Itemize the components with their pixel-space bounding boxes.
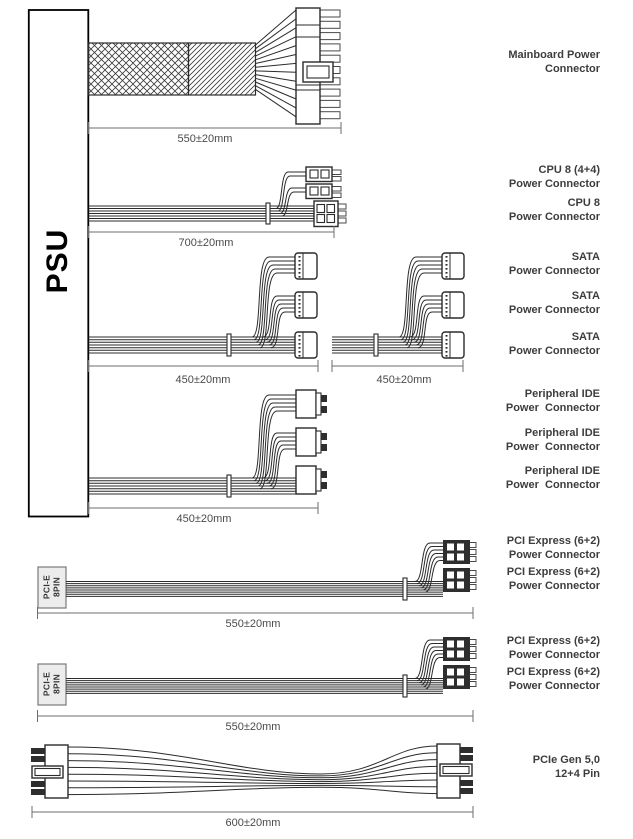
label-line: SATA [509,290,600,304]
label-sata-1: SATAPower Connector [509,251,600,278]
label-sata-2: SATAPower Connector [509,290,600,317]
label-line: PCI Express (6+2) [507,635,600,649]
mainboard-cable-drawing [89,8,342,134]
label-pcie-2: PCI Express (6+2)Power Connector [507,566,600,593]
label-line: Power Connector [509,211,600,225]
psu-cable-diagram: PSU PCI-E8PIN PCI-E8PIN 550±20mm 700±20m… [0,0,633,839]
pcie-8pin-plug-label-1: PCI-E8PIN [43,575,62,599]
sata1-dimension-line [89,360,319,372]
label-pcie-4: PCI Express (6+2)Power Connector [507,666,600,693]
label-sata-3: SATAPower Connector [509,331,600,358]
plug-label-line1: PCI-E [42,575,52,599]
label-cpu-8: CPU 8Power Connector [509,197,600,224]
label-line: PCI Express (6+2) [507,666,600,680]
label-line: Power Connector [506,441,600,455]
label-line: Peripheral IDE [506,388,600,402]
ide-cable-drawing [89,390,328,514]
label-line: Mainboard Power [508,49,600,63]
sata2-dimension-line [332,360,463,372]
label-line: CPU 8 (4+4) [509,164,600,178]
mainboard-24pin-connector [296,8,340,124]
label-line: Power Connector [507,680,600,694]
label-line: CPU 8 [509,197,600,211]
label-line: SATA [509,331,600,345]
label-line: Peripheral IDE [506,465,600,479]
label-pcie-3: PCI Express (6+2)Power Connector [507,635,600,662]
label-cpu-4plus4: CPU 8 (4+4)Power Connector [509,164,600,191]
dimension-mainboard: 550±20mm [178,133,233,145]
plug-label-line1: PCI-E [42,672,52,696]
label-line: Power Connector [507,549,600,563]
label-line: Power Connector [507,580,600,594]
label-line: Power Connector [506,402,600,416]
label-mainboard: Mainboard PowerConnector [508,49,600,76]
label-line: Peripheral IDE [506,427,600,441]
label-pcie-1: PCI Express (6+2)Power Connector [507,535,600,562]
dimension-pcie1: 550±20mm [226,618,281,630]
label-line: Connector [508,63,600,77]
ide-molex-connectors [296,390,327,494]
label-line: Power Connector [509,304,600,318]
sata-cable-2-drawing [332,253,464,372]
dimension-ide: 450±20mm [177,513,232,525]
dimension-gen5: 600±20mm [226,817,281,829]
label-ide-3: Peripheral IDEPower Connector [506,465,600,492]
cpu-4plus4-connector [306,167,341,199]
label-ide-1: Peripheral IDEPower Connector [506,388,600,415]
sata-cable-1-drawing [89,253,319,372]
gen5-left-connector [31,745,68,798]
dimension-sata2: 450±20mm [377,374,432,386]
pcie-cable-2-drawing [38,637,477,722]
cpu-cable-drawing [89,167,347,238]
cpu-8pin-connector [314,201,346,227]
label-line: 12+4 Pin [533,768,600,782]
label-line: PCI Express (6+2) [507,566,600,580]
label-line: PCIe Gen 5,0 [533,754,600,768]
gen5-right-connector [437,744,473,798]
pcie-cable-1-drawing [38,540,477,619]
label-line: Power Connector [509,265,600,279]
label-line: Power Connector [509,345,600,359]
diagram-line-art [0,0,633,839]
dimension-sata1: 450±20mm [176,374,231,386]
label-line: SATA [509,251,600,265]
label-gen5: PCIe Gen 5,012+4 Pin [533,754,600,781]
label-line: Power Connector [506,479,600,493]
label-line: Power Connector [509,178,600,192]
dimension-pcie2: 550±20mm [226,721,281,733]
plug-label-line2: 8PIN [51,674,61,694]
psu-label: PSU [41,229,75,294]
label-ide-2: Peripheral IDEPower Connector [506,427,600,454]
label-line: PCI Express (6+2) [507,535,600,549]
gen5-cable-drawing [31,744,473,818]
label-line: Power Connector [507,649,600,663]
dimension-cpu: 700±20mm [179,237,234,249]
plug-label-line2: 8PIN [51,577,61,597]
pcie-8pin-plug-label-2: PCI-E8PIN [43,672,62,696]
